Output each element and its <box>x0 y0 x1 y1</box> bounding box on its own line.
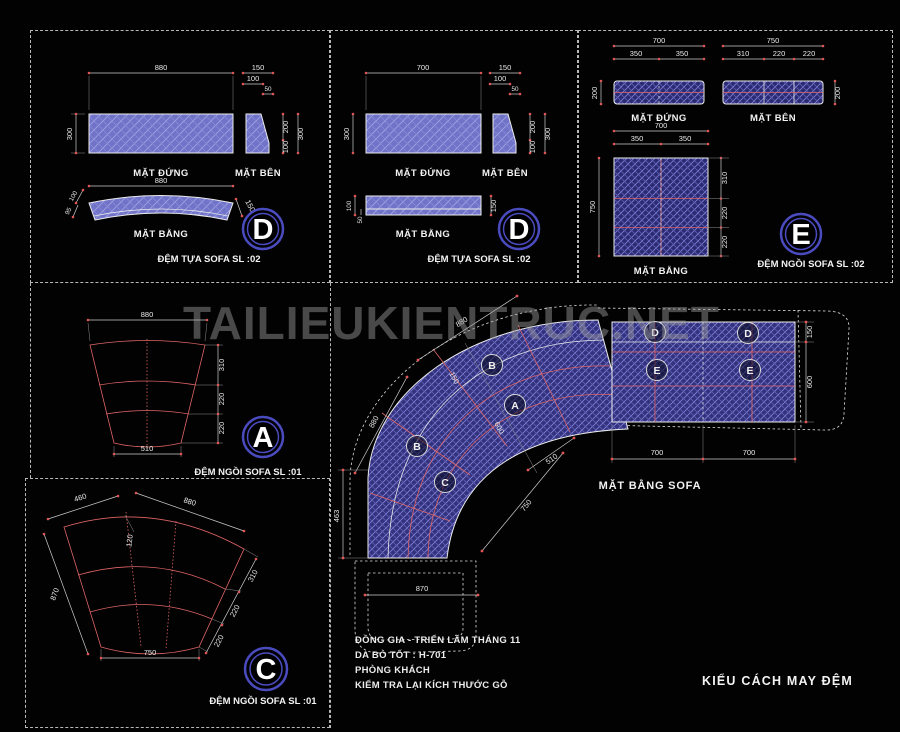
dim-label: 460 <box>73 491 88 503</box>
panel-caption: ĐỆM TỰA SOFA SL :02 <box>427 253 530 265</box>
panel-c-drawing: 460 880 120 870 310 220 220 750 <box>26 479 329 727</box>
dim-label: 350 <box>630 49 643 58</box>
dim-label: 750 <box>767 36 780 45</box>
marker-letter: C <box>441 477 449 489</box>
dim-label: 100 <box>281 141 290 154</box>
sofa-curved-section <box>368 320 628 558</box>
dim-label: 310 <box>720 172 729 185</box>
dim-label: 870 <box>48 587 61 602</box>
dim-label: 750 <box>144 648 157 657</box>
panel-d2-drawing: 700 300 MẶT ĐỨNG 150 100 50 200 100 300 <box>331 31 577 282</box>
dim-label: 300 <box>543 128 552 141</box>
dim-label: 700 <box>655 121 668 130</box>
sofa-plan-drawing: B A B C D D E E 880 880 150 600 510 75 <box>330 283 900 732</box>
panel-caption: ĐỆM NGỒI SOFA SL :01 <box>209 695 317 707</box>
sheet-title: KIỂU CÁCH MAY ĐỆM <box>702 673 853 688</box>
dim-label: 350 <box>679 134 692 143</box>
dim-label: 310 <box>737 49 750 58</box>
dim-label: 880 <box>141 310 154 319</box>
dim-label: 95 <box>64 206 74 216</box>
d2-plan-view: 100 50 150 MẶT BẰNG <box>346 195 498 240</box>
dim-label: 700 <box>417 63 430 72</box>
marker-letter: A <box>511 400 519 412</box>
dim-label: 463 <box>332 510 341 523</box>
d2-side-view: 150 100 50 200 100 300 MẶT BÊN <box>482 63 552 179</box>
d1-front-view: 880 300 MẶT ĐỨNG <box>65 63 234 179</box>
e-plan-view: 700 350 350 750 310 220 220 MẶT BẰNG <box>588 121 729 277</box>
panel-d1-drawing: 880 300 MẶT ĐỨNG 150 100 50 200 1 <box>31 31 329 282</box>
dim-label: 310 <box>246 568 260 583</box>
view-label-front: MẶT ĐỨNG <box>395 167 450 179</box>
marker-letter: C <box>256 654 277 686</box>
note-line: DA BÒ TỐT : H-701 <box>355 649 447 661</box>
marker-letter: D <box>253 214 274 246</box>
dim-label: 350 <box>631 134 644 143</box>
note-line: PHÒNG KHÁCH <box>355 664 430 676</box>
view-label-plan: MẶT BẰNG <box>396 229 450 240</box>
dim-label: 220 <box>217 422 226 435</box>
dim-label: 220 <box>228 603 242 618</box>
panel-cushion-e: 700 350 350 200 MẶT ĐỨNG 750 310 220 220 <box>578 30 893 283</box>
dim-label: 310 <box>217 359 226 372</box>
panel-cushion-d2: 700 300 MẶT ĐỨNG 150 100 50 200 100 300 <box>330 30 578 283</box>
dim-label: 100 <box>247 74 260 83</box>
marker-letter: B <box>488 360 496 372</box>
watermark-text: TAILIEUKIENTRUC.NET <box>183 296 720 350</box>
a-fan-shape <box>90 339 205 449</box>
dim-label: 700 <box>743 448 756 457</box>
dim-label: 200 <box>833 87 842 100</box>
dim-label: 870 <box>416 584 429 593</box>
notes-block: ĐỒNG GIA - TRIỂN LÃM THÁNG 11 DA BÒ TỐT … <box>355 634 521 691</box>
dim-label: 700 <box>651 448 664 457</box>
e-front-view: 700 350 350 200 MẶT ĐỨNG <box>590 36 705 124</box>
dim-label: 220 <box>773 49 786 58</box>
dim-label: 220 <box>217 393 226 406</box>
dim-label: 50 <box>511 86 519 93</box>
d2-front-view: 700 300 MẶT ĐỨNG <box>342 63 482 179</box>
dim-label: 880 <box>182 495 197 508</box>
dim-label: 100 <box>528 141 537 154</box>
view-label-plan: MẶT BẰNG <box>634 266 688 277</box>
dim-label: 350 <box>676 49 689 58</box>
view-label-side: MẶT BÊN <box>482 167 528 179</box>
marker-letter: E <box>746 365 753 377</box>
marker-letter: B <box>413 441 421 453</box>
marker-letter: D <box>509 214 530 246</box>
panel-caption: ĐỆM NGỒI SOFA SL :01 <box>194 466 302 478</box>
panel-cushion-d1: 880 300 MẶT ĐỨNG 150 100 50 200 1 <box>30 30 330 283</box>
a-marker: A <box>243 417 283 457</box>
dim-label: 120 <box>124 534 134 548</box>
dim-label: 510 <box>544 452 559 467</box>
panel-caption: ĐỆM TỰA SOFA SL :02 <box>157 253 260 265</box>
dim-label: 880 <box>367 414 381 429</box>
d1-plan-view: 880 100 95 150 MẶT BẰNG <box>64 176 257 240</box>
view-label-plan: MẶT BẰNG <box>134 229 188 240</box>
d1-side-view: 150 100 50 200 100 300 MẶT BÊN <box>235 63 305 179</box>
dim-label: 220 <box>212 633 226 648</box>
dim-label: 150 <box>805 326 814 339</box>
panel-e-drawing: 700 350 350 200 MẶT ĐỨNG 750 310 220 220 <box>579 31 892 282</box>
dim-label: 510 <box>141 444 154 453</box>
dim-label: 200 <box>528 121 537 134</box>
dim-label: 50 <box>264 86 272 93</box>
note-line: ĐỒNG GIA - TRIỂN LÃM THÁNG 11 <box>355 634 521 646</box>
dim-label: 300 <box>65 128 74 141</box>
dim-label: 300 <box>296 128 305 141</box>
marker-letter: E <box>653 365 660 377</box>
c-marker: C <box>245 648 287 690</box>
dim-label: 880 <box>155 176 168 185</box>
marker-letter: D <box>744 328 752 340</box>
dim-label: 100 <box>346 200 353 211</box>
dim-label: 300 <box>342 128 351 141</box>
note-line: KIỂM TRA LẠI KÍCH THƯỚC GỖ <box>355 679 508 691</box>
plan-title: MẶT BẰNG SOFA <box>599 479 702 492</box>
e-marker: E <box>781 214 821 254</box>
sofa-plan-region: B A B C D D E E 880 880 150 600 510 75 <box>330 283 900 732</box>
d1-marker: D <box>243 209 283 249</box>
dim-label: 750 <box>588 201 597 214</box>
dim-label: 150 <box>252 63 265 72</box>
dim-label: 880 <box>155 63 168 72</box>
cad-sheet: TAILIEUKIENTRUC.NET 880 300 <box>0 0 900 732</box>
dim-label: 220 <box>720 236 729 249</box>
dim-label: 150 <box>499 63 512 72</box>
dim-label: 220 <box>720 207 729 220</box>
dim-label: 150 <box>489 200 498 213</box>
marker-letter: E <box>791 219 810 251</box>
marker-letter: A <box>253 422 274 454</box>
dim-label: 200 <box>281 121 290 134</box>
dim-label: 600 <box>805 376 814 389</box>
panel-cushion-c: 460 880 120 870 310 220 220 750 <box>25 478 330 728</box>
dim-label: 50 <box>357 216 364 224</box>
view-label-side: MẶT BÊN <box>750 112 796 124</box>
dim-label: 100 <box>68 190 79 203</box>
c-dimensions: 460 880 120 870 310 220 220 750 <box>43 491 260 661</box>
panel-caption: ĐỆM NGỒI SOFA SL :02 <box>757 258 864 270</box>
dim-label: 750 <box>519 498 534 513</box>
dim-label: 220 <box>803 49 816 58</box>
view-label-side: MẶT BÊN <box>235 167 281 179</box>
dim-label: 200 <box>590 87 599 100</box>
dim-label: 100 <box>494 74 507 83</box>
d2-marker: D <box>499 209 539 249</box>
dim-label: 700 <box>653 36 666 45</box>
e-side-view: 750 310 220 220 200 MẶT BÊN <box>722 36 842 124</box>
